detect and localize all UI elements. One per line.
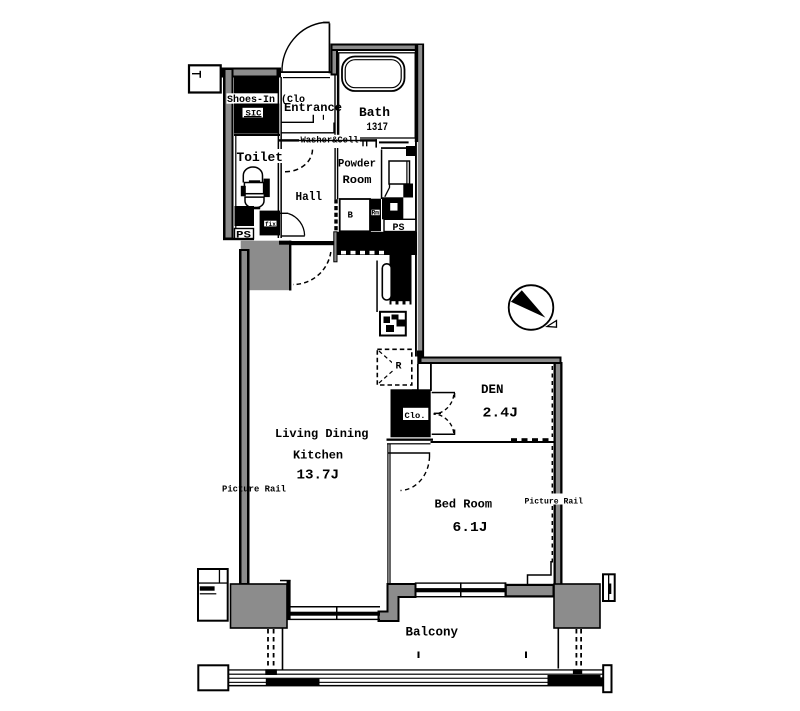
svg-text:Entrance: Entrance [284,101,342,115]
svg-text:Rm: Rm [372,210,380,217]
svg-text:Clo.: Clo. [405,412,426,421]
svg-text:fix.: fix. [265,221,279,228]
svg-text:Picture Rail: Picture Rail [525,496,584,506]
svg-text:Room: Room [343,175,372,187]
svg-text:Bath: Bath [359,106,390,120]
svg-text:6.1J: 6.1J [453,520,488,536]
svg-text:13.7J: 13.7J [297,468,340,484]
svg-text:Picture Rail: Picture Rail [222,484,287,494]
svg-text:B: B [348,211,354,221]
svg-text:1317: 1317 [367,122,389,134]
svg-text:R: R [396,362,402,373]
svg-text:Toilet: Toilet [237,151,284,165]
svg-text:Powder: Powder [338,159,376,171]
svg-text:DEN: DEN [481,383,504,397]
svg-text:2.4J: 2.4J [483,406,519,422]
svg-text:Living Dining: Living Dining [275,427,369,441]
svg-text:Hall: Hall [296,190,323,204]
svg-text:Bed Room: Bed Room [435,498,493,512]
svg-text:Kitchen: Kitchen [293,449,343,463]
svg-text:Balcony: Balcony [406,626,459,640]
